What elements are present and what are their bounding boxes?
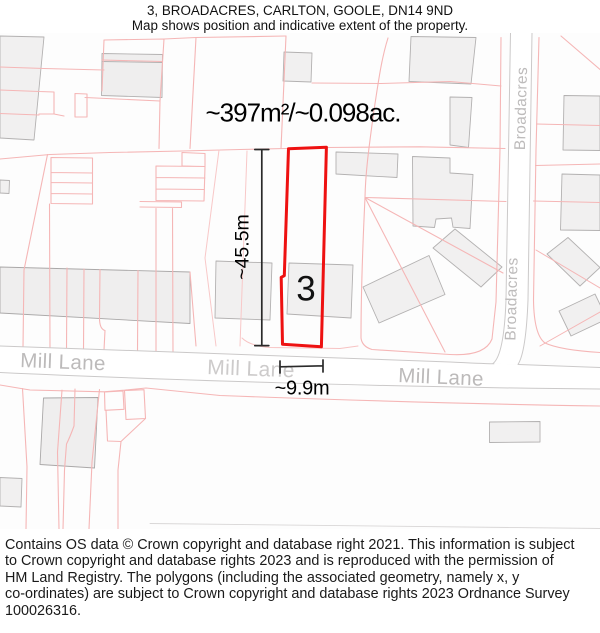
svg-text:Broadacres: Broadacres xyxy=(512,67,531,151)
svg-text:~397m²/~0.098ac.: ~397m²/~0.098ac. xyxy=(205,98,400,128)
svg-text:Mill Lane: Mill Lane xyxy=(398,364,485,391)
svg-text:Mill Lane: Mill Lane xyxy=(20,349,106,375)
svg-text:Broadacres: Broadacres xyxy=(502,257,521,341)
svg-text:3: 3 xyxy=(296,270,315,309)
svg-text:~45.5m: ~45.5m xyxy=(232,214,254,280)
svg-text:~9.9m: ~9.9m xyxy=(275,378,330,400)
